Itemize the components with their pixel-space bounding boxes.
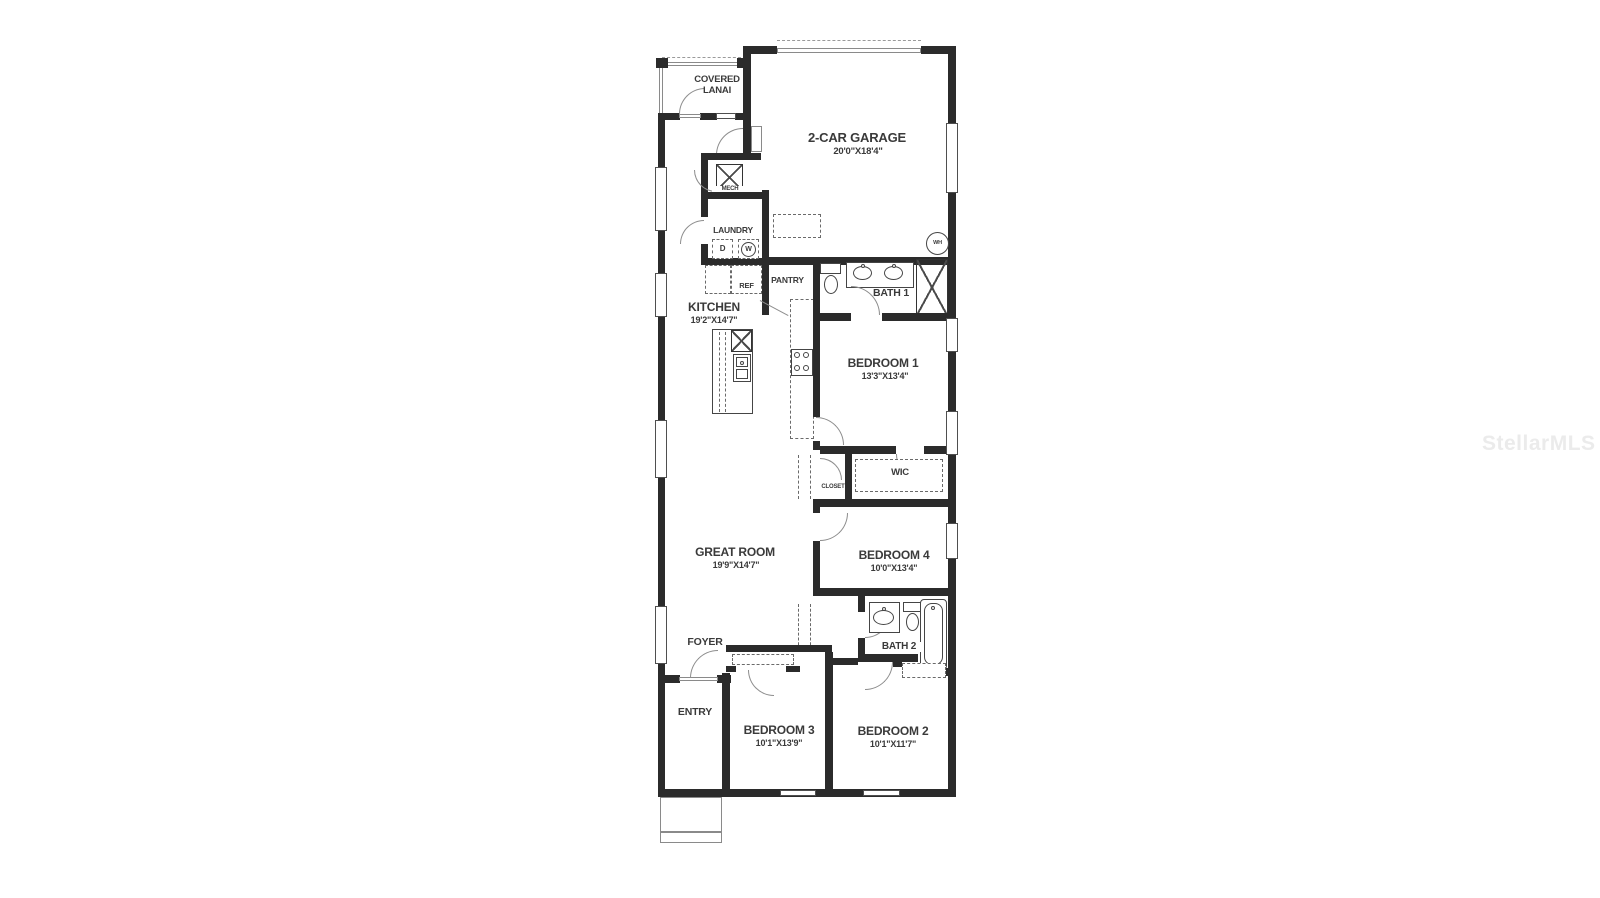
lanai-screen-wall — [659, 62, 663, 117]
dryer-label: D — [712, 245, 733, 253]
sink — [873, 610, 894, 625]
room-label-wic: WIC — [884, 468, 916, 478]
window — [863, 790, 900, 796]
room-label-bath2: BATH 2 — [874, 642, 924, 652]
room-dims-kitchen: 19'2"X14'7" — [683, 316, 745, 325]
island-counter-edge — [719, 332, 720, 412]
cased-opening — [798, 604, 799, 650]
sink — [884, 266, 903, 280]
wall — [825, 652, 833, 789]
faucet — [882, 607, 886, 611]
garage-step — [751, 126, 762, 152]
room-label-mech: MECH — [712, 186, 748, 192]
room-label-bedroom1: BEDROOM 1 — [841, 357, 925, 369]
toilet-tank — [820, 263, 841, 274]
door-arc — [680, 220, 704, 244]
window — [655, 606, 667, 664]
garage-attic-access — [773, 214, 821, 238]
door-arc — [820, 513, 848, 541]
room-label-bedroom3: BEDROOM 3 — [736, 724, 822, 736]
faucet — [892, 264, 896, 268]
room-dims-bedroom1: 13'3"X13'4" — [845, 372, 925, 381]
room-label-kitchen: KITCHEN — [687, 301, 741, 313]
faucet — [740, 361, 744, 365]
wall — [762, 258, 769, 315]
wall — [658, 113, 680, 120]
lanai-screen-dash — [662, 57, 746, 58]
room-label-lanai: LANAI — [689, 86, 745, 96]
room-label-garage: 2-CAR GARAGE — [803, 131, 911, 144]
room-dims-bedroom4: 10'0"X13'4" — [858, 564, 930, 573]
burner — [803, 352, 809, 358]
cased-opening — [810, 455, 811, 499]
wall — [858, 654, 918, 662]
shower — [916, 259, 948, 316]
bathtub-basin — [924, 603, 943, 665]
water-heater-label: WH — [926, 241, 949, 247]
wall — [786, 666, 800, 672]
kitchen-counter — [705, 265, 731, 294]
wall — [701, 153, 761, 160]
wall — [813, 499, 956, 507]
window — [716, 113, 736, 119]
burner — [803, 365, 809, 371]
wall — [813, 588, 956, 596]
room-label-bedroom2: BEDROOM 2 — [849, 725, 937, 737]
wall — [845, 454, 852, 501]
wall — [813, 313, 851, 321]
window — [655, 273, 667, 317]
wall — [700, 113, 717, 120]
wall — [813, 321, 820, 417]
wall — [701, 258, 769, 265]
room-dims-garage: 20'0"X18'4" — [826, 147, 890, 157]
lanai-door-threshold — [679, 114, 701, 118]
faucet — [931, 606, 935, 610]
door-arc — [865, 662, 893, 690]
closet-shelf — [732, 654, 794, 665]
window — [780, 790, 816, 796]
wall — [858, 596, 865, 612]
window — [946, 123, 958, 193]
faucet — [861, 264, 865, 268]
room-label-closet: CLOSET — [818, 484, 848, 490]
room-dims-great-room: 19'9"X14'7" — [705, 561, 767, 570]
room-label-lanai: COVERED — [689, 75, 745, 85]
toilet-bowl — [824, 275, 838, 294]
window — [655, 420, 667, 478]
window — [946, 318, 958, 352]
cased-opening — [810, 604, 811, 650]
entry-porch — [660, 797, 722, 843]
room-label-great-room: GREAT ROOM — [691, 546, 779, 558]
room-label-laundry: LAUNDRY — [702, 226, 764, 235]
kitchen-sink-basin — [736, 369, 748, 379]
wall — [893, 660, 902, 667]
door-arc — [748, 670, 774, 696]
window — [946, 411, 958, 455]
room-dims-bedroom2: 10'1"X11'7" — [861, 740, 925, 749]
lanai-screen-wall — [659, 62, 745, 66]
porch-step — [660, 831, 722, 833]
wall — [833, 658, 858, 665]
room-dims-bedroom3: 10'1"X13'9" — [749, 739, 809, 748]
floor-plan: StellarMLS COVERED LANAI 2-CAR GARAGE 20… — [0, 0, 1600, 898]
wall — [701, 192, 769, 199]
room-label-bath1: BATH 1 — [866, 288, 916, 299]
garage-door — [777, 48, 921, 53]
wall — [701, 199, 708, 217]
wall — [658, 675, 680, 683]
door-arc-front-entry — [690, 650, 718, 678]
island-counter-edge — [725, 332, 726, 412]
toilet-bowl — [906, 613, 919, 631]
cased-opening — [798, 455, 799, 499]
wall — [813, 257, 820, 319]
stellar-mls-watermark: StellarMLS — [1482, 432, 1596, 456]
lanai-post — [656, 58, 668, 68]
dishwasher — [731, 330, 752, 352]
door-arc-garage-entry — [716, 128, 743, 155]
wall — [882, 313, 948, 321]
window — [655, 167, 667, 231]
room-label-entry: ENTRY — [672, 707, 718, 718]
wall — [726, 645, 832, 652]
wall — [743, 46, 751, 160]
wall — [820, 446, 896, 454]
door-arc — [820, 458, 842, 480]
burner — [794, 352, 800, 358]
closet-shelf — [902, 663, 946, 678]
room-label-foyer: FOYER — [683, 637, 727, 648]
wall — [722, 673, 730, 789]
washer-label: W — [741, 246, 756, 253]
burner — [794, 365, 800, 371]
sink — [853, 266, 872, 280]
wall — [813, 499, 820, 513]
garage-door-header — [777, 40, 921, 41]
door-arc — [816, 417, 844, 445]
room-label-pantry: PANTRY — [764, 276, 811, 285]
room-label-bedroom4: BEDROOM 4 — [851, 549, 937, 561]
window — [946, 523, 958, 559]
ref-label: REF — [733, 282, 760, 290]
wall — [726, 666, 736, 672]
